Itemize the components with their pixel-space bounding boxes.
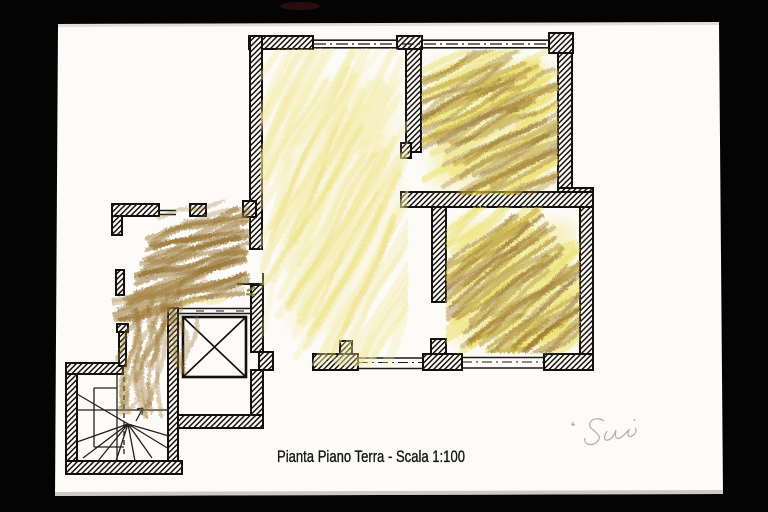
svg-text:Pianta Piano Terra - Scala 1:1: Pianta Piano Terra - Scala 1:100 — [277, 447, 465, 466]
